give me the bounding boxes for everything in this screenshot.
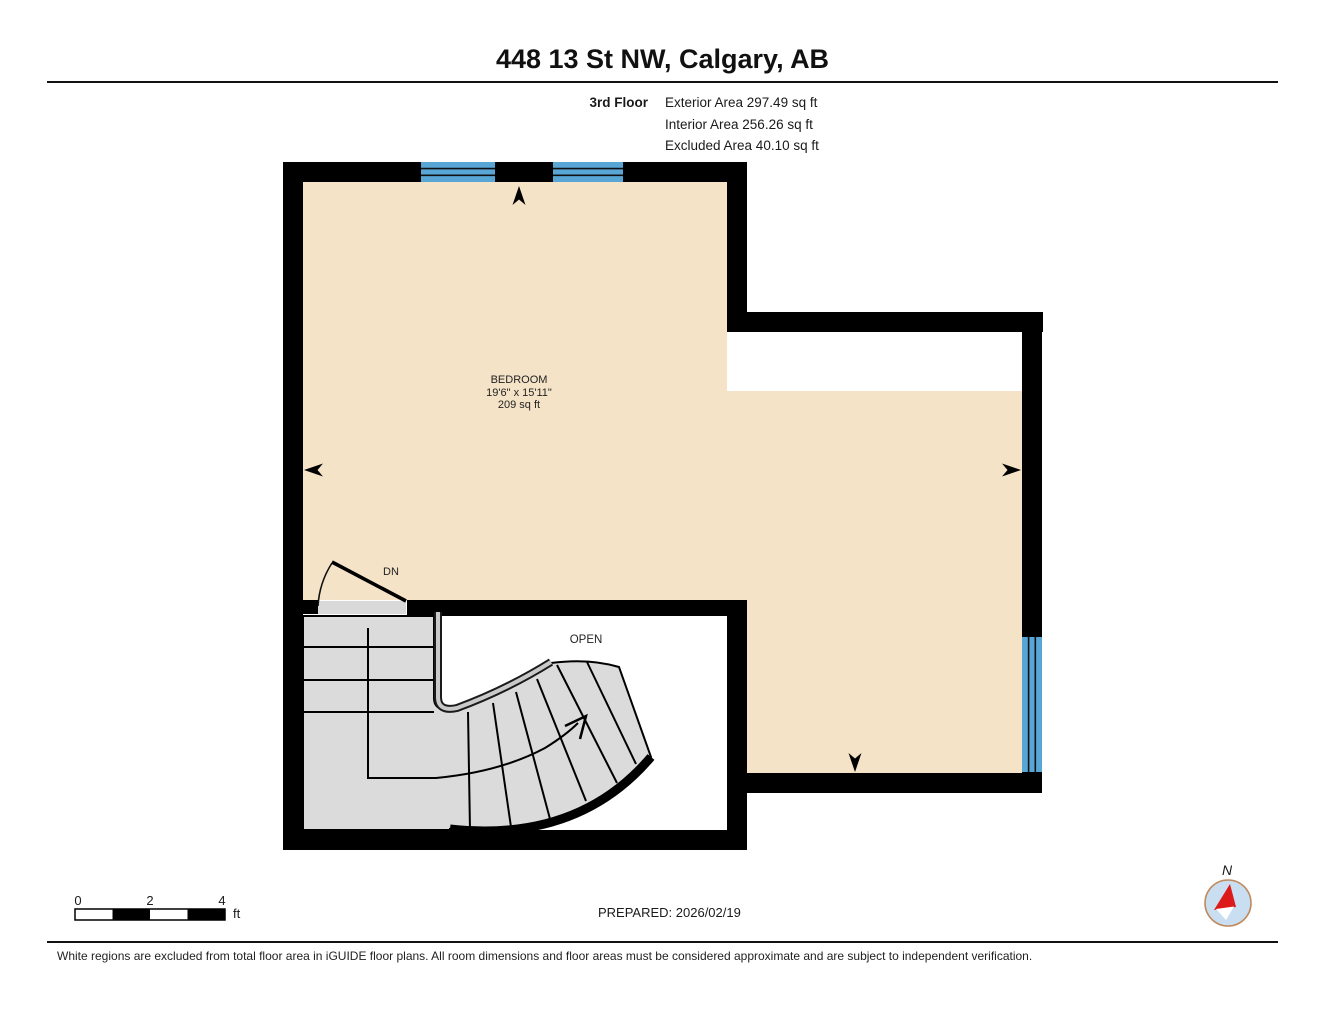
window-top-right — [553, 162, 623, 182]
scale-unit: ft — [233, 906, 240, 921]
scale-tick-2: 2 — [140, 893, 160, 908]
floor-label: 3rd Floor — [398, 95, 648, 110]
open-to-below-label: OPEN — [536, 634, 636, 646]
header-divider — [47, 81, 1278, 83]
room-name: BEDROOM — [419, 374, 619, 386]
floor-plan-drawing — [0, 0, 1325, 1024]
door-threshold — [318, 601, 406, 614]
scale-tick-4: 4 — [212, 893, 232, 908]
page-title: 448 13 St NW, Calgary, AB — [0, 44, 1325, 75]
wall-right-upper — [727, 162, 747, 330]
wall-ext-top — [727, 312, 1043, 332]
room-dimensions: 19'6" x 15'11" — [419, 387, 619, 399]
floor-plan-page: 448 13 St NW, Calgary, AB 3rd Floor Exte… — [0, 0, 1325, 1024]
prepared-date: PREPARED: 2026/02/19 — [598, 905, 741, 920]
scale-tick-0: 0 — [68, 893, 88, 908]
exterior-area-stat: Exterior Area 297.49 sq ft — [665, 95, 817, 110]
window-top-left — [421, 162, 495, 182]
wall-door-stub — [303, 600, 318, 614]
wall-left — [283, 162, 303, 850]
wall-top — [283, 162, 747, 182]
compass-icon — [1205, 880, 1251, 926]
window-right — [1022, 637, 1042, 772]
disclaimer-text: White regions are excluded from total fl… — [57, 949, 1032, 963]
floor-plan — [283, 162, 1043, 850]
wall-ext-bottom — [727, 773, 1042, 793]
wall-interior — [407, 600, 747, 616]
excluded-area-stat: Excluded Area 40.10 sq ft — [665, 138, 819, 153]
stairs-down-label: DN — [383, 566, 399, 578]
scale-bar — [75, 909, 225, 920]
room-area: 209 sq ft — [419, 399, 619, 411]
footer-divider — [47, 941, 1278, 943]
interior-area-stat: Interior Area 256.26 sq ft — [665, 117, 813, 132]
excluded-area-region — [727, 332, 1022, 391]
wall-right-lower — [727, 616, 747, 850]
compass-north-label: N — [1205, 862, 1249, 878]
